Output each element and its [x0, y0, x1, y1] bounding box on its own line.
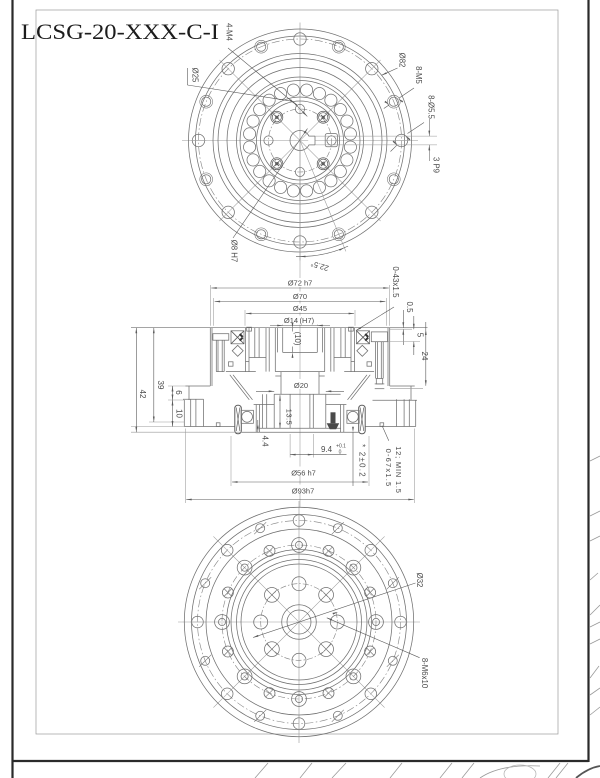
svg-text:* 2±0.2: * 2±0.2	[358, 444, 367, 478]
svg-text:LCSG-20-XXX-C-I: LCSG-20-XXX-C-I	[21, 19, 219, 44]
svg-text:Ø45: Ø45	[293, 304, 307, 313]
svg-text:24: 24	[420, 352, 429, 361]
svg-text:9.4: 9.4	[321, 445, 333, 454]
svg-text:Ø72 h7: Ø72 h7	[288, 279, 313, 288]
svg-text:8-M5: 8-M5	[414, 66, 423, 84]
svg-text:10: 10	[175, 409, 184, 418]
svg-text:0: 0	[339, 450, 342, 456]
svg-text:13.5: 13.5	[285, 409, 294, 426]
svg-text:5: 5	[416, 333, 425, 338]
svg-text:Ø25: Ø25	[191, 68, 200, 83]
svg-text:4-M4: 4-M4	[225, 23, 234, 41]
svg-text:6: 6	[174, 390, 183, 395]
svg-text:0.5: 0.5	[405, 301, 414, 313]
svg-text:Ø93h7: Ø93h7	[292, 487, 315, 496]
svg-text:Ø70: Ø70	[293, 292, 307, 301]
svg-text:42: 42	[138, 390, 147, 399]
svg-text:Ø82: Ø82	[398, 53, 407, 68]
svg-text:4.4: 4.4	[261, 435, 270, 447]
svg-text:0-43x1.5: 0-43x1.5	[391, 266, 400, 298]
svg-text:0-67x1.5: 0-67x1.5	[384, 449, 393, 488]
svg-text:8-Ø5.5: 8-Ø5.5	[427, 95, 436, 119]
svg-text:Ø20: Ø20	[294, 381, 308, 390]
svg-text:Ø14 (H7): Ø14 (H7)	[284, 316, 315, 325]
svg-text:3 P9: 3 P9	[432, 157, 441, 173]
svg-text:39: 39	[156, 381, 165, 390]
svg-text:12; MIN 1.5: 12; MIN 1.5	[394, 446, 403, 494]
svg-text:(10): (10)	[293, 332, 302, 346]
svg-text:8-M6x10: 8-M6x10	[420, 658, 429, 689]
svg-text:Ø8 H7: Ø8 H7	[230, 240, 239, 263]
svg-text:Ø56 h7: Ø56 h7	[291, 469, 316, 478]
svg-text:Ø32: Ø32	[415, 573, 424, 588]
